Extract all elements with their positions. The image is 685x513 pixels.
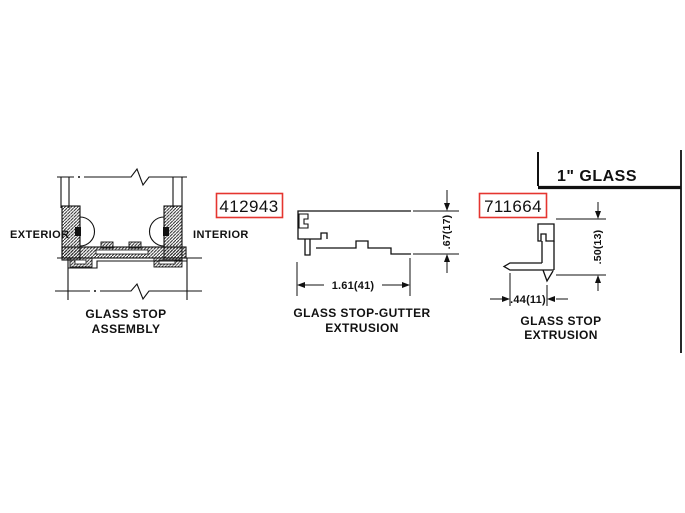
gutter-profile-screw-clip [299,214,308,228]
stop-part-number[interactable]: 711664 [484,197,542,216]
stop-dim-width: .44(11) [510,294,546,306]
stop-title-line2: EXTRUSION [524,328,598,342]
left-gasket-clip [75,227,81,236]
right-gasket-clip [163,227,169,236]
right-gasket [150,217,165,246]
lower-stub-lines [68,291,187,300]
mullion-wall-lines [61,177,182,208]
glass-stop-assembly-view [55,169,202,300]
arrow-up-icon [595,275,601,283]
gutter-profile-leg [305,239,310,255]
interior-label: INTERIOR [193,229,249,241]
arrow-down-icon [444,203,450,211]
stop-profile-hook [538,224,554,241]
arrow-right-icon [402,282,410,288]
stop-profile-foot [543,270,553,281]
assembly-title-line1: GLASS STOP [85,307,166,321]
arrow-down-icon [595,211,601,219]
gutter-left-foot-slot [75,260,86,264]
assembly-top-break-line [57,169,187,185]
assembly-title-line2: ASSEMBLY [92,322,161,336]
exterior-label: EXTERIOR [10,229,69,241]
arrow-left-icon [297,282,305,288]
arrow-right-icon [502,296,510,302]
gutter-title-line2: EXTRUSION [325,321,399,335]
catalog-drawing-page: EXTERIOR INTERIOR GLASS STOP ASSEMBLY 41… [0,0,685,513]
gutter-clip-a [101,242,113,248]
glass-size-note: 1" GLASS [557,168,637,185]
left-gasket [80,217,95,246]
gutter-extrusion-view [297,190,459,296]
gutter-dim-width: 1.61(41) [332,280,375,292]
gutter-profile-top-left [298,211,411,239]
gutter-title-line1: GLASS STOP-GUTTER [293,306,430,320]
gutter-dim-height: .67(17) [441,215,453,250]
centerline-dot [94,290,96,292]
gutter-slot [96,250,148,254]
assembly-bottom-break-line [55,284,202,299]
technical-drawing: EXTERIOR INTERIOR GLASS STOP ASSEMBLY 41… [0,0,685,513]
arrow-up-icon [444,254,450,262]
gutter-profile-web [316,241,411,254]
gutter-part-number[interactable]: 412943 [219,197,278,216]
arrow-left-icon [547,296,555,302]
stop-title-line1: GLASS STOP [520,314,601,328]
gutter-clip-b [129,242,141,248]
centerline-dot [78,176,80,178]
stop-profile-stem [542,241,554,270]
stop-profile-arm [504,263,554,270]
stop-dim-height: .50(13) [592,230,604,265]
